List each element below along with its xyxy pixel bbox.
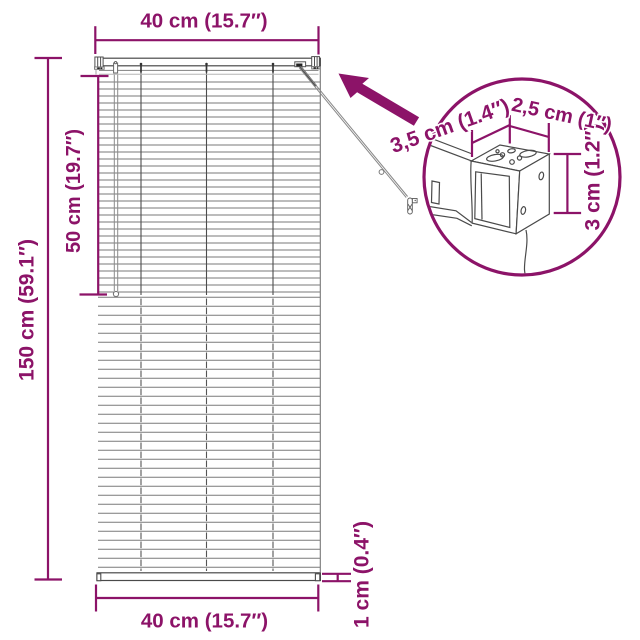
svg-text:40 cm (15.7″): 40 cm (15.7″) (140, 10, 267, 33)
svg-text:40 cm (15.7″): 40 cm (15.7″) (141, 610, 268, 633)
svg-text:3 cm (1.2″): 3 cm (1.2″) (582, 124, 605, 231)
svg-text:150 cm (59.1″): 150 cm (59.1″) (16, 239, 39, 381)
svg-text:50 cm (19.7″): 50 cm (19.7″) (63, 129, 85, 253)
svg-text:1 cm (0.4″): 1 cm (0.4″) (351, 521, 374, 628)
